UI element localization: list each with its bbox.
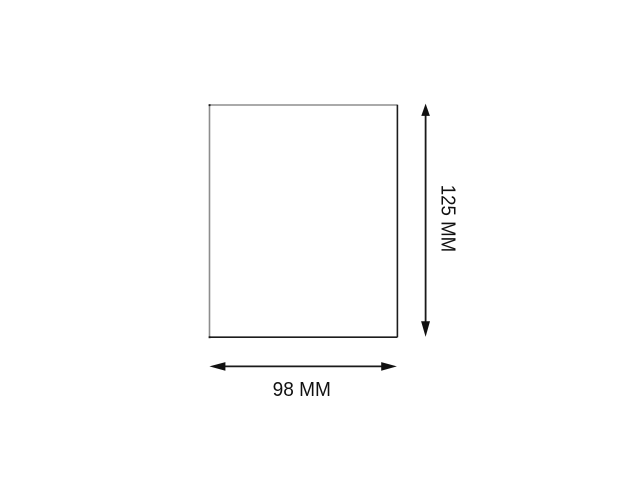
svg-text:125 MM: 125 MM	[437, 185, 459, 253]
svg-text:98 MM: 98 MM	[273, 379, 331, 401]
